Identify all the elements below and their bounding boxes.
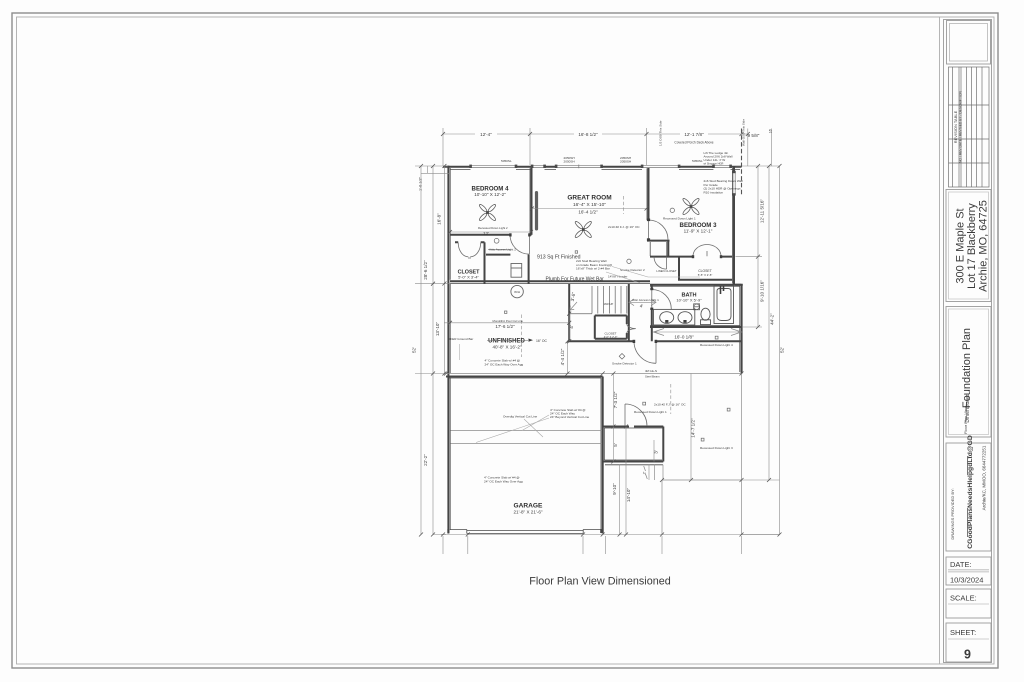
svg-text:16'-4" X 15'-10": 16'-4" X 15'-10": [573, 202, 606, 208]
svg-text:16'-8": 16'-8": [437, 213, 442, 225]
svg-text:W/H: W/H: [514, 290, 520, 294]
svg-text:4'-0" X 2'-0": 4'-0" X 2'-0": [604, 335, 618, 339]
svg-text:10'-10" X 12'-2": 10'-10" X 12'-2": [474, 192, 506, 197]
svg-text:40'-8" X 16'-2": 40'-8" X 16'-2": [492, 344, 521, 349]
svg-text:Archie, MO, 64725: Archie, MO, 64725: [978, 200, 990, 292]
svg-text:LINEN CLOSET: LINEN CLOSET: [656, 269, 676, 273]
svg-text:R10 insulation: R10 insulation: [704, 190, 724, 194]
svg-text:913 Sq Ft Finished: 913 Sq Ft Finished: [537, 255, 581, 261]
svg-text:Recessed Down Light 4: Recessed Down Light 4: [700, 343, 733, 347]
svg-text:14'-7 1/2": 14'-7 1/2": [691, 418, 696, 438]
svg-text:2050SH: 2050SH: [620, 159, 631, 163]
svg-text:DATE:: DATE:: [950, 560, 972, 569]
svg-text:CGoodPlansNeedsHlelpgdLtd@GD: CGoodPlansNeedsHlelpgdLtd@GD: [967, 435, 974, 549]
svg-text:2050SH: 2050SH: [564, 159, 575, 163]
svg-text:24" OC Each Way Over Agg: 24" OC Each Way Over Agg: [484, 479, 523, 483]
svg-text:Archie/KC, MMOO, 6644772251: Archie/KC, MMOO, 6644772251: [982, 445, 987, 510]
svg-text:12'-4": 12'-4": [480, 132, 492, 137]
svg-text:16'-4 1/2": 16'-4 1/2": [578, 210, 598, 215]
svg-text:UFER Ground Bar: UFER Ground Bar: [448, 337, 473, 341]
svg-text:Floor Plan View Dimensioned: Floor Plan View Dimensioned: [529, 576, 670, 588]
svg-text:52': 52': [780, 347, 785, 353]
svg-text:300 E Maple St: 300 E Maple St: [955, 208, 967, 283]
svg-text:Under 12L 'J' W: Under 12L 'J' W: [704, 158, 726, 162]
svg-text:Floor Plan View: Floor Plan View: [963, 406, 968, 434]
svg-text:Recessed Down Light 3: Recessed Down Light 3: [700, 446, 733, 450]
svg-text:4': 4': [640, 304, 644, 309]
svg-text:16R UP: 16R UP: [604, 302, 614, 306]
svg-text:28'-6 1/2": 28'-6 1/2": [423, 260, 428, 280]
svg-text:SCALE:: SCALE:: [950, 594, 977, 603]
svg-text:9'-10": 9'-10": [612, 483, 617, 495]
svg-text:1/2 OSB This Side: 1/2 OSB This Side: [659, 120, 663, 146]
svg-text:GREAT ROOM: GREAT ROOM: [567, 195, 611, 202]
svg-text:1'-0 1/2": 1'-0 1/2": [419, 176, 423, 191]
svg-text:Steel Beam: Steel Beam: [645, 375, 660, 379]
svg-text:DRAWINGS PROVIDED BY:: DRAWINGS PROVIDED BY:: [950, 488, 955, 539]
svg-text:24" Beyond Vertical Cut Line: 24" Beyond Vertical Cut Line: [550, 415, 590, 419]
svg-text:12'-1 7/8": 12'-1 7/8": [684, 132, 704, 137]
svg-text:GARAGE: GARAGE: [514, 503, 544, 510]
svg-text:w/ Simpson HGR: w/ Simpson HGR: [704, 161, 724, 165]
svg-text:SHEET:: SHEET:: [950, 628, 976, 637]
svg-text:13'-10": 13'-10": [435, 322, 440, 337]
svg-text:Lot 17 Blackberry: Lot 17 Blackberry: [966, 203, 978, 289]
svg-text:Smoke Detector 1: Smoke Detector 1: [612, 362, 637, 366]
svg-text:Recessed Down Light 1: Recessed Down Light 1: [634, 410, 667, 414]
svg-text:22'-2": 22'-2": [423, 454, 428, 466]
svg-text:2x10 #2 F.J. @ 16" OC: 2x10 #2 F.J. @ 16" OC: [654, 403, 686, 407]
svg-text:12': 12': [483, 231, 489, 236]
svg-text:12'-11 5/16": 12'-11 5/16": [760, 199, 765, 224]
svg-text:Monolithic Pour Cut Line: Monolithic Pour Cut Line: [493, 319, 524, 323]
svg-text:17'-6 1/2": 17'-6 1/2": [495, 324, 515, 329]
svg-text:52': 52': [412, 347, 417, 353]
svg-text:14'-10": 14'-10": [626, 488, 631, 503]
svg-text:3': 3': [654, 450, 659, 454]
svg-text:Attic Access Light 1: Attic Access Light 1: [489, 248, 516, 252]
svg-text:Recessed Down Light 2: Recessed Down Light 2: [478, 226, 508, 230]
svg-text:Attic Access Light 1: Attic Access Light 1: [632, 298, 659, 302]
svg-text:16': 16': [769, 128, 773, 133]
svg-text:21'-8" X 21'-6": 21'-8" X 21'-6": [513, 510, 542, 515]
svg-text:16'-8 1/2": 16'-8 1/2": [578, 132, 598, 137]
svg-text:10/3/2024: 10/3/2024: [950, 576, 983, 585]
svg-text:9: 9: [964, 648, 971, 662]
svg-text:Covered Porch Deck Above: Covered Porch Deck Above: [674, 141, 713, 145]
svg-text:2x10 #2 F.J. @ 16" OC: 2x10 #2 F.J. @ 16" OC: [608, 225, 640, 229]
svg-text:4': 4': [569, 325, 574, 329]
svg-text:5'-0" X 3'-4": 5'-0" X 3'-4": [458, 274, 479, 279]
svg-text:Overdig Vertical Cut Line: Overdig Vertical Cut Line: [503, 414, 537, 418]
svg-text:NO / REV DATE / REVISED BY / D: NO / REV DATE / REVISED BY / DESCRIPTION: [959, 91, 963, 163]
svg-text:5': 5': [613, 443, 618, 447]
svg-text:16" OC: 16" OC: [536, 339, 548, 343]
svg-text:44'-2": 44'-2": [770, 313, 775, 325]
svg-text:5050SL: 5050SL: [692, 159, 703, 163]
svg-text:4'-4 1/2": 4'-4 1/2": [560, 348, 565, 365]
svg-text:24" OC Each Way Over Agg: 24" OC Each Way Over Agg: [485, 362, 524, 366]
svg-text:2': 2': [642, 471, 646, 474]
svg-text:Recessed Down Light 1: Recessed Down Light 1: [663, 217, 696, 221]
svg-text:11'-9" X 12'-1": 11'-9" X 12'-1": [684, 229, 713, 234]
svg-text:REVISION TABLE: REVISION TABLE: [953, 110, 958, 143]
svg-text:16'-0 1/8": 16'-0 1/8": [674, 334, 694, 339]
svg-text:9 5/8": 9 5/8": [748, 133, 760, 138]
svg-text:Plumb For Future Wet Bar: Plumb For Future Wet Bar: [546, 276, 605, 282]
svg-text:5050SL: 5050SL: [501, 159, 512, 163]
svg-text:4M Glu-N: 4M Glu-N: [645, 369, 657, 373]
svg-text:9'-10 1/16": 9'-10 1/16": [760, 280, 765, 302]
svg-text:7'-3 1/2": 7'-3 1/2": [613, 391, 618, 408]
svg-text:10'-10" X 5'-9": 10'-10" X 5'-9": [676, 298, 702, 303]
svg-text:CLOSET: CLOSET: [604, 332, 616, 336]
svg-text:16"x8" Thick w/ 2-#4 Bar: 16"x8" Thick w/ 2-#4 Bar: [576, 267, 610, 271]
svg-text:5'-5" X 2'-5": 5'-5" X 2'-5": [698, 273, 713, 277]
svg-text:Wall OSB This Side: Wall OSB This Side: [742, 119, 746, 146]
